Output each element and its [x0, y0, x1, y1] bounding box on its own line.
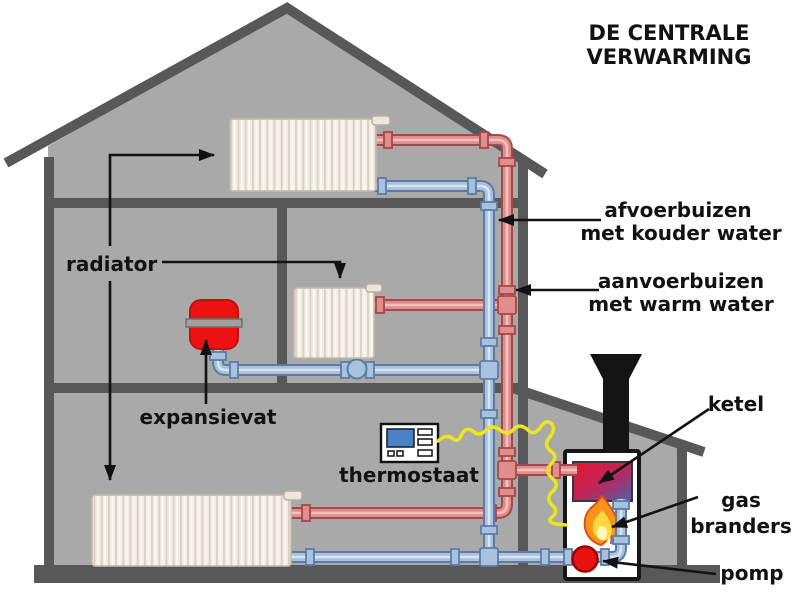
label-expansievat: expansievat — [140, 405, 277, 429]
pump — [573, 547, 598, 572]
label-gas-branders-line2: branders — [690, 514, 792, 538]
radiator-bottom — [92, 491, 302, 566]
chimney-cap — [590, 354, 642, 379]
radiator-valve-fitting — [348, 360, 367, 379]
radiator-middle — [294, 284, 382, 358]
label-return-pipes-line1: afvoerbuizen — [604, 198, 751, 222]
label-radiator: radiator — [66, 252, 157, 276]
thermostat — [381, 424, 438, 462]
label-return-pipes-line2: met kouder water — [580, 221, 781, 245]
label-supply-pipes-line2: met warm water — [588, 292, 774, 316]
chimney-shaft — [603, 372, 629, 456]
radiator-valve — [366, 284, 382, 292]
label-pomp: pomp — [720, 561, 783, 585]
label-thermostaat: thermostaat — [339, 463, 479, 487]
radiator-valve — [284, 491, 302, 500]
label-supply-pipes-line1: aanvoerbuizen — [598, 269, 764, 293]
radiator-valve — [372, 116, 390, 125]
interior-wall — [277, 203, 287, 391]
radiator-top — [230, 116, 390, 191]
right-wall — [518, 162, 528, 568]
label-ketel: ketel — [708, 392, 764, 416]
page-title-line2: VERWARMING — [587, 45, 752, 69]
central-heating-diagram: DE CENTRALE VERWARMING radiator expansie… — [0, 0, 800, 595]
label-gas-branders-line1: gas — [721, 488, 761, 512]
annex-right-wall — [677, 441, 687, 570]
page-title-line1: DE CENTRALE — [589, 21, 750, 45]
thermostat-screen — [387, 429, 414, 447]
expansion-vessel — [186, 300, 242, 349]
expansion-vessel-band — [186, 319, 242, 327]
left-wall — [44, 157, 54, 568]
